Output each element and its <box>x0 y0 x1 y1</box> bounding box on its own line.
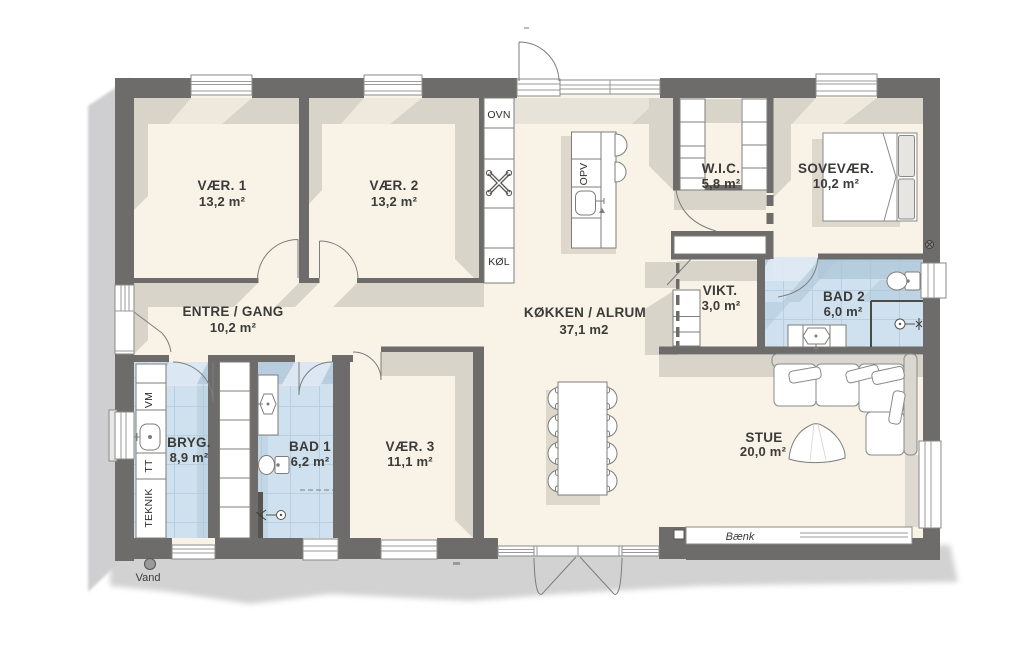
svg-text:STUE: STUE <box>745 430 782 445</box>
svg-text:Vand: Vand <box>136 572 161 584</box>
svg-text:TT: TT <box>143 459 155 473</box>
svg-text:10,2 m²: 10,2 m² <box>813 176 860 191</box>
svg-text:37,1 m2: 37,1 m2 <box>559 322 608 337</box>
svg-text:13,2 m²: 13,2 m² <box>199 194 246 209</box>
svg-text:KØKKEN / ALRUM: KØKKEN / ALRUM <box>524 305 646 320</box>
svg-text:BAD 2: BAD 2 <box>823 289 865 304</box>
svg-text:6,2 m²: 6,2 m² <box>291 454 330 469</box>
svg-text:BRYG.: BRYG. <box>167 435 211 450</box>
svg-text:13,2 m²: 13,2 m² <box>371 194 418 209</box>
svg-text:OVN: OVN <box>487 109 510 121</box>
svg-text:SOVEVÆR.: SOVEVÆR. <box>798 161 874 176</box>
svg-text:BAD 1: BAD 1 <box>289 439 331 454</box>
svg-text:Bænk: Bænk <box>726 531 755 543</box>
svg-text:VIKT.: VIKT. <box>703 283 738 298</box>
svg-text:8,9 m²: 8,9 m² <box>170 450 209 465</box>
svg-text:20,0 m²: 20,0 m² <box>740 444 787 459</box>
svg-text:11,1 m²: 11,1 m² <box>387 454 433 469</box>
svg-text:VÆR. 1: VÆR. 1 <box>197 178 246 193</box>
svg-text:5,8 m²: 5,8 m² <box>702 176 741 191</box>
svg-text:VÆR. 2: VÆR. 2 <box>369 178 418 193</box>
svg-text:ENTRE / GANG: ENTRE / GANG <box>182 304 283 319</box>
svg-text:3,0 m²: 3,0 m² <box>702 298 741 313</box>
svg-text:OPV: OPV <box>578 163 590 186</box>
svg-text:VÆR. 3: VÆR. 3 <box>385 439 434 454</box>
svg-text:VM: VM <box>143 392 155 408</box>
svg-text:TEKNIK: TEKNIK <box>143 488 155 527</box>
svg-text:10,2 m²: 10,2 m² <box>210 320 257 335</box>
svg-text:KØL: KØL <box>488 256 510 268</box>
svg-text:W.I.C.: W.I.C. <box>702 161 741 176</box>
svg-text:6,0 m²: 6,0 m² <box>824 304 863 319</box>
